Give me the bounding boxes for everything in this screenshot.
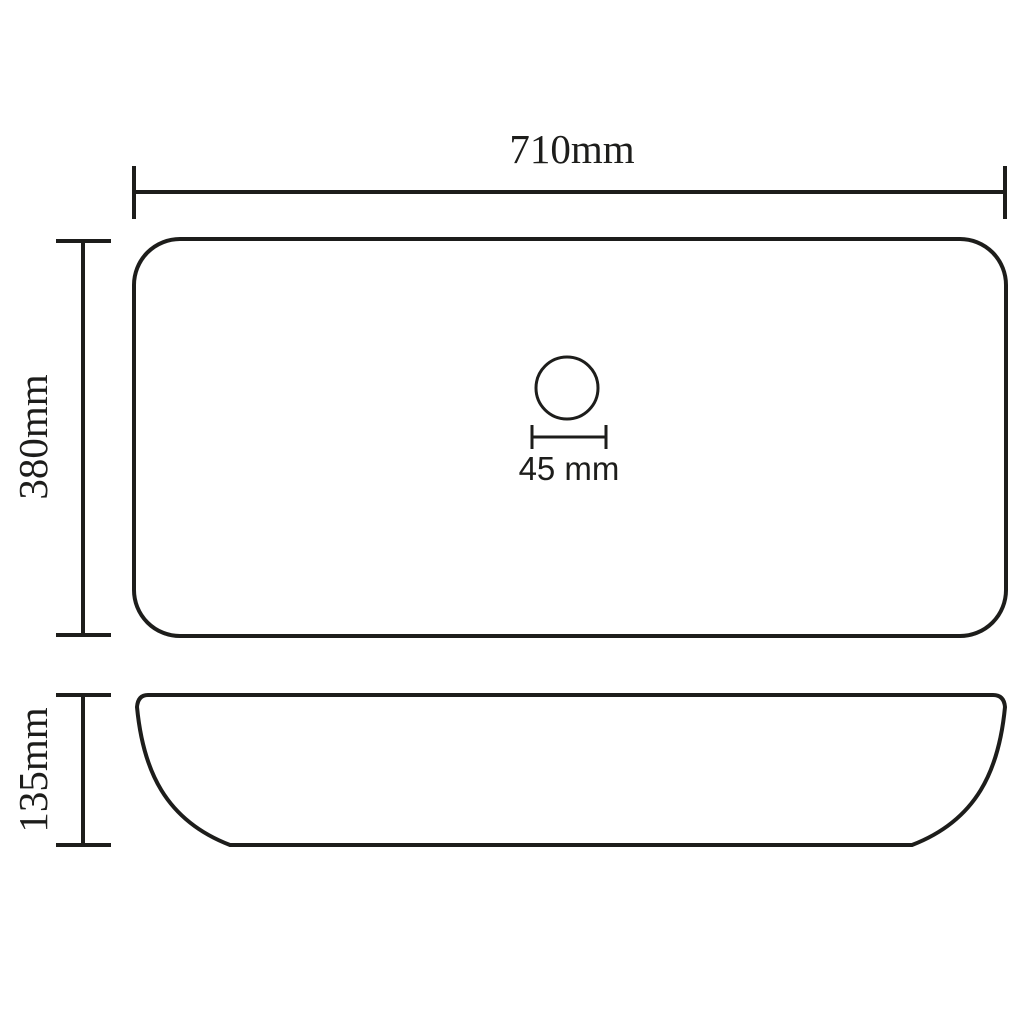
drain-hole (536, 357, 598, 419)
drain-dimension: 45 mm (519, 425, 620, 487)
height-dimension-label: 135mm (10, 707, 56, 832)
side-view (137, 695, 1005, 845)
basin-side-view-outline (137, 695, 1005, 845)
depth-dimension: 380mm (10, 241, 111, 635)
technical-drawing-page: 710mm 380mm 45 mm 135mm (0, 0, 1024, 1024)
width-dimension-label: 710mm (509, 126, 634, 172)
width-dimension: 710mm (134, 126, 1005, 219)
height-dimension: 135mm (10, 695, 111, 845)
depth-dimension-label: 380mm (10, 374, 56, 499)
sink-dimension-diagram: 710mm 380mm 45 mm 135mm (0, 0, 1024, 1024)
drain-dimension-label: 45 mm (519, 450, 620, 487)
